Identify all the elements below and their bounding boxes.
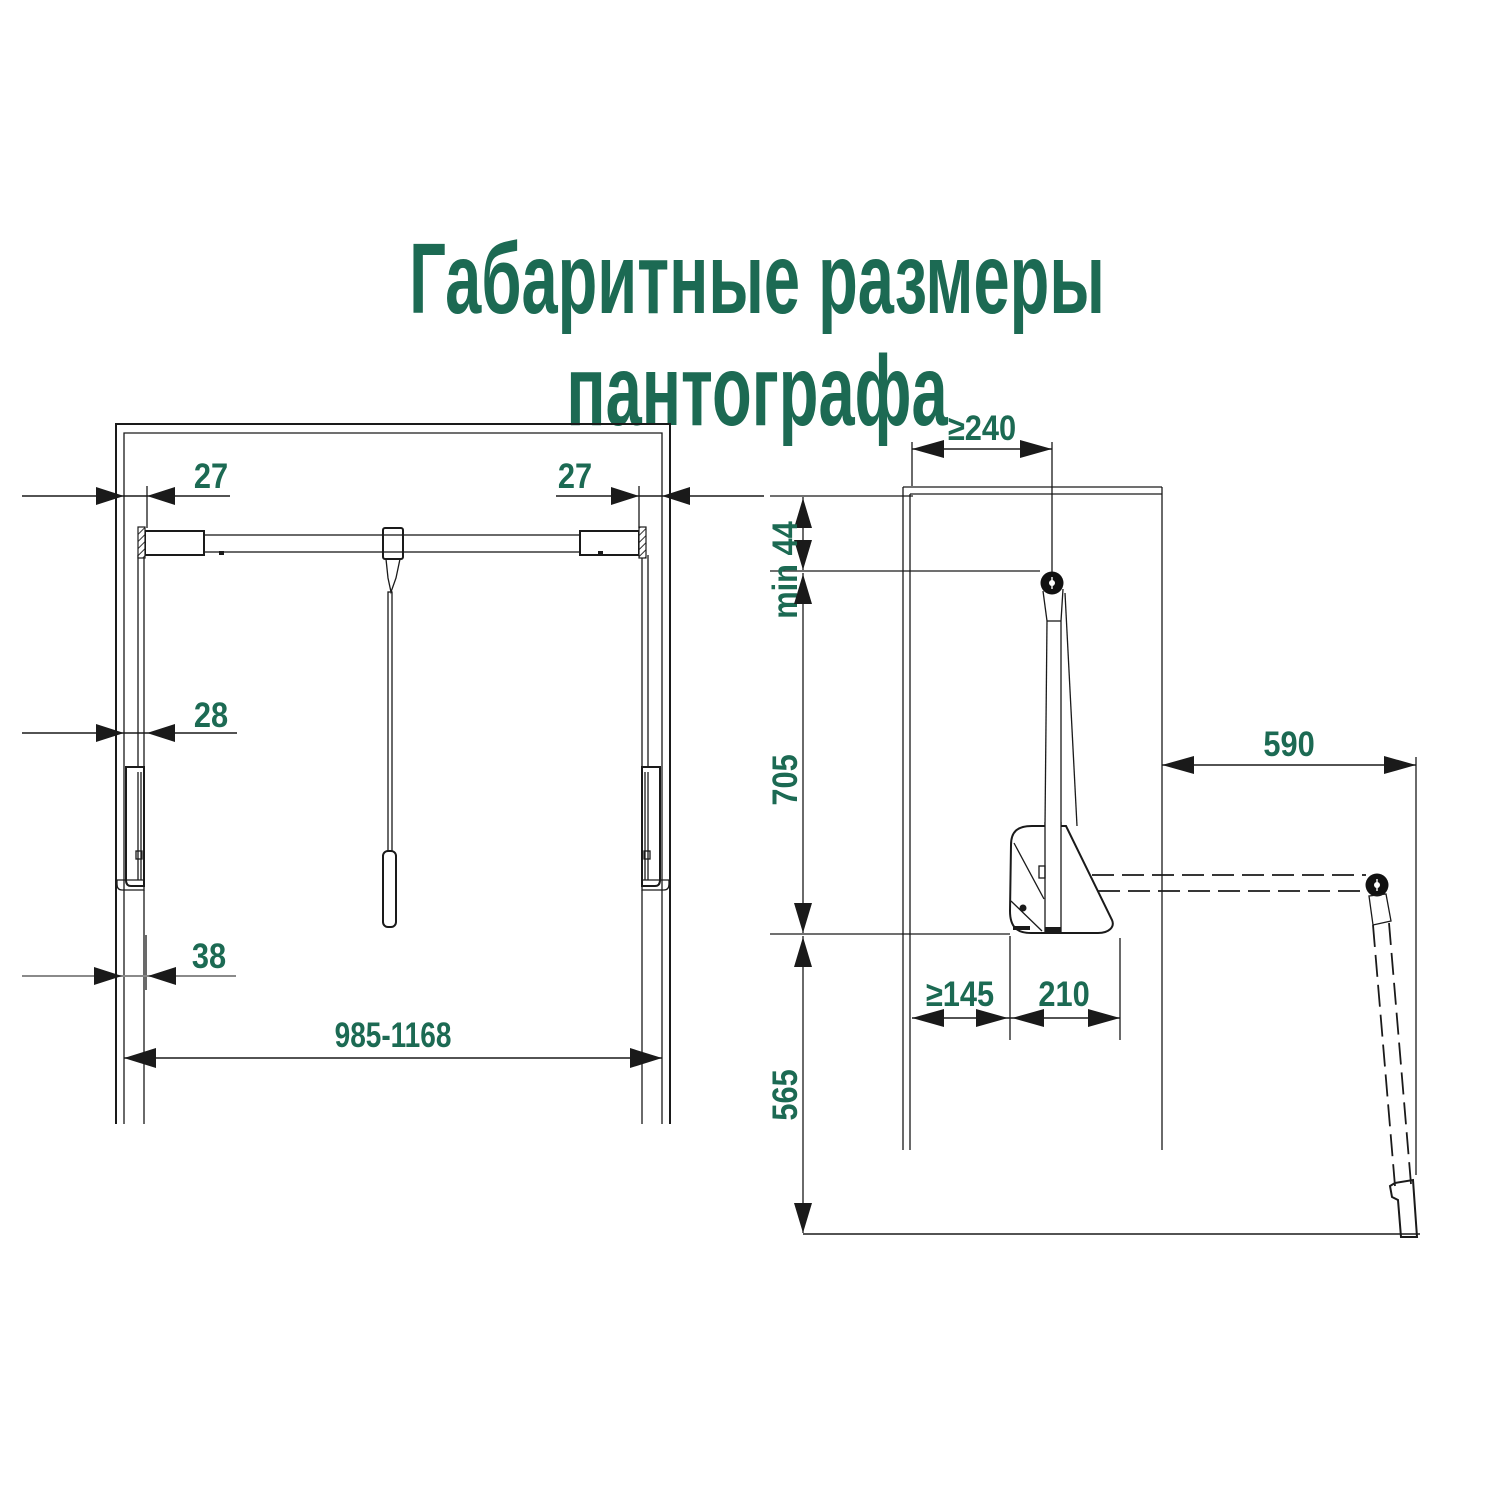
- dim-145-210: ≥145 210: [912, 936, 1120, 1040]
- mounting-plate-left: [117, 767, 144, 890]
- dim-27-left: 27: [22, 456, 230, 528]
- pull-handle: [383, 851, 396, 927]
- dim-705: 705: [765, 573, 1010, 934]
- technical-drawing: Габаритные размеры пантографа: [0, 0, 1500, 1499]
- extended-rod: [1092, 875, 1366, 891]
- pull-rod: [383, 592, 396, 927]
- dim-28-value: 28: [194, 695, 228, 734]
- dim-27-right-value: 27: [558, 456, 592, 495]
- dim-705-value: 705: [765, 754, 804, 805]
- front-view-drawing: 27 27 28 38 98: [22, 424, 764, 1124]
- dim-240-value: ≥240: [948, 408, 1016, 447]
- lift-housing: [1010, 822, 1113, 934]
- side-view-drawing: ≥240 min 44 705 565: [765, 408, 1420, 1237]
- housing-screw: [1020, 905, 1027, 912]
- drop-rod-handle: [1390, 1180, 1417, 1237]
- dim-min-44-value: min 44: [765, 521, 804, 619]
- dim-27-left-value: 27: [194, 456, 228, 495]
- drop-rod: [1373, 923, 1417, 1237]
- bar-center-connector: [383, 528, 403, 559]
- lift-arm: [1043, 589, 1077, 826]
- dim-width-range-value: 985-1168: [335, 1015, 452, 1055]
- dim-width-range: 985-1168: [124, 1015, 662, 1068]
- dim-27-right: 27: [556, 456, 764, 528]
- dim-28: 28: [22, 695, 237, 742]
- lift-mechanism: [1010, 572, 1417, 1238]
- hanging-bar: [138, 527, 646, 592]
- bar-end-cap-right: [639, 527, 646, 558]
- bar-end-cap-left: [138, 527, 145, 558]
- cabinet-outline-side: [903, 487, 1162, 1150]
- dim-565-value: 565: [765, 1069, 804, 1120]
- dim-590: 590: [1162, 724, 1416, 1175]
- dim-38: 38: [22, 935, 236, 990]
- pantograph-dimensions-page: Габаритные размеры пантографа: [0, 0, 1500, 1499]
- dim-145-value: ≥145: [926, 974, 994, 1013]
- top-pivot: [1041, 572, 1064, 595]
- outer-pivot: [1366, 874, 1392, 926]
- title-line-2: пантографа: [566, 335, 948, 446]
- mounting-plate-right: [642, 767, 669, 890]
- dim-210-value: 210: [1038, 974, 1089, 1013]
- dim-38-value: 38: [192, 936, 226, 975]
- dim-590-value: 590: [1263, 724, 1314, 763]
- dim-565: 565: [765, 936, 1420, 1234]
- title-line-1: Габаритные размеры: [409, 223, 1105, 334]
